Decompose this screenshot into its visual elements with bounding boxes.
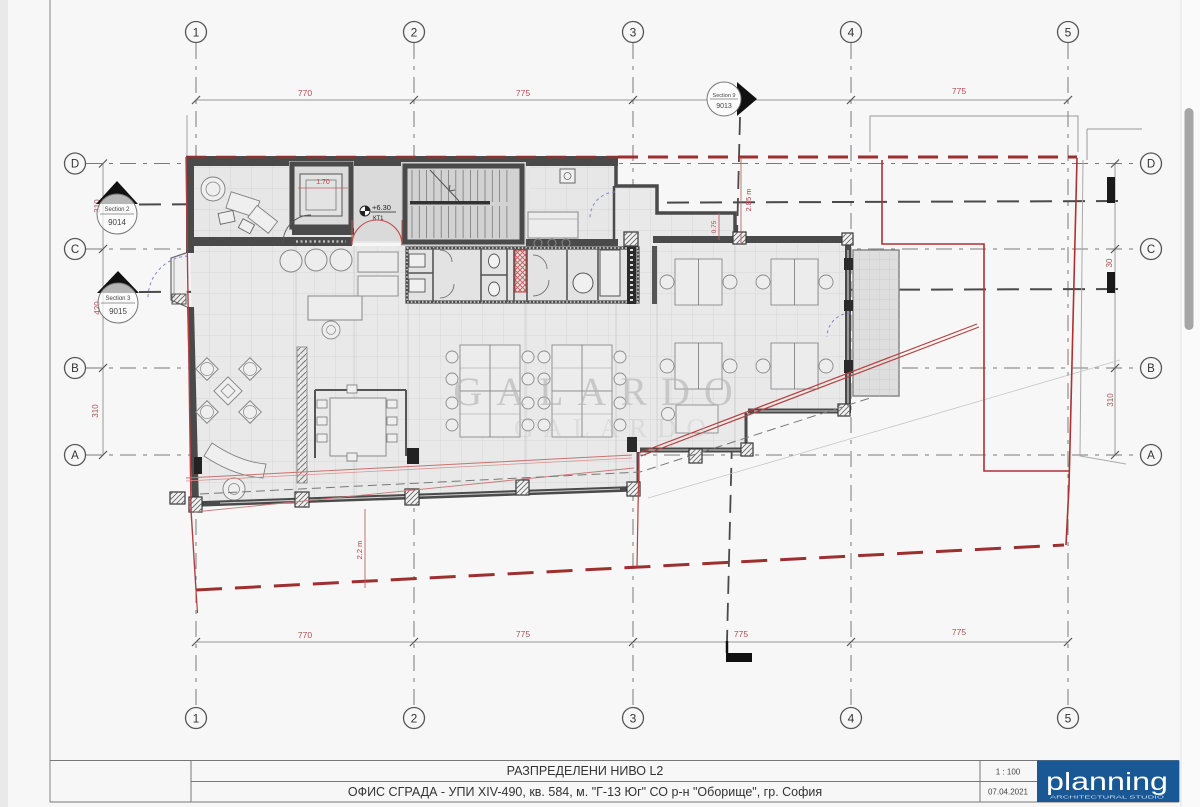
svg-text:775: 775	[516, 629, 530, 639]
svg-text:D: D	[71, 159, 79, 171]
svg-text:ОФИС СГРАДА - УПИ XIV-490, кв.: ОФИС СГРАДА - УПИ XIV-490, кв. 584, м. "…	[348, 785, 822, 799]
svg-text:5: 5	[1065, 712, 1072, 726]
svg-text:+6.30: +6.30	[372, 203, 391, 212]
svg-text:4: 4	[848, 712, 855, 726]
svg-text:planning: planning	[1046, 768, 1168, 796]
svg-text:B: B	[71, 363, 79, 375]
svg-text:GALARDO: GALARDO	[514, 413, 716, 443]
svg-text:2: 2	[411, 712, 418, 726]
svg-text:310: 310	[1106, 393, 1115, 407]
svg-text:A: A	[1147, 450, 1155, 462]
svg-text:A: A	[71, 450, 79, 462]
svg-text:GALARDO: GALARDO	[453, 369, 747, 414]
svg-text:C: C	[71, 244, 79, 256]
svg-text:9013: 9013	[716, 103, 732, 110]
svg-text:Section 9: Section 9	[713, 93, 736, 99]
svg-text:5: 5	[1065, 26, 1072, 40]
svg-text:775: 775	[734, 629, 748, 639]
svg-text:2.85 m: 2.85 m	[744, 189, 753, 212]
svg-text:D: D	[1147, 159, 1155, 171]
svg-text:770: 770	[298, 630, 312, 640]
svg-text:9015: 9015	[109, 307, 127, 316]
svg-text:1: 1	[193, 712, 200, 726]
svg-text:Section 3: Section 3	[105, 296, 131, 302]
svg-text:30: 30	[1105, 258, 1114, 267]
svg-text:2.2 m: 2.2 m	[355, 541, 364, 560]
svg-text:775: 775	[952, 86, 966, 96]
svg-text:0.75: 0.75	[711, 220, 718, 233]
svg-text:РАЗПРЕДЕЛЕНИ НИВО L2: РАЗПРЕДЕЛЕНИ НИВО L2	[507, 764, 664, 778]
svg-text:1: 1	[193, 26, 200, 40]
svg-text:B: B	[1147, 363, 1155, 375]
svg-text:ARCHITECTURAL STUDIO: ARCHITECTURAL STUDIO	[1050, 795, 1165, 800]
svg-text:9014: 9014	[108, 218, 126, 227]
svg-text:775: 775	[516, 88, 530, 98]
svg-text:07.04.2021: 07.04.2021	[988, 788, 1029, 797]
svg-text:2: 2	[411, 26, 418, 40]
svg-text:775: 775	[952, 627, 966, 637]
svg-text:310: 310	[91, 404, 100, 418]
svg-text:3: 3	[630, 712, 637, 726]
svg-text:4: 4	[848, 26, 855, 40]
svg-text:C: C	[1147, 244, 1155, 256]
svg-text:3: 3	[630, 26, 637, 40]
svg-text:1.70: 1.70	[316, 179, 330, 186]
svg-text:Section 2: Section 2	[104, 207, 130, 213]
svg-text:770: 770	[298, 88, 312, 98]
svg-text:1 : 100: 1 : 100	[996, 768, 1021, 777]
